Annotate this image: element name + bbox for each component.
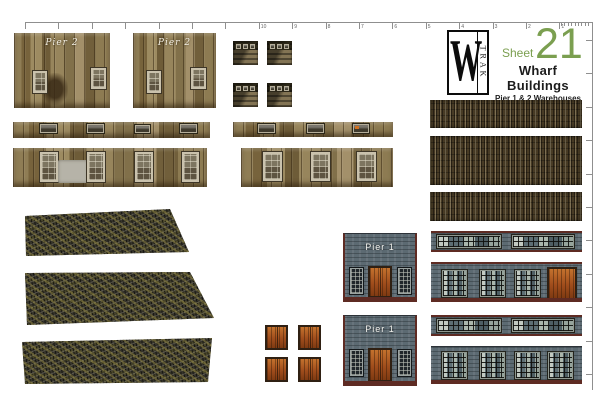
ruler-tick	[586, 140, 592, 141]
window	[250, 86, 255, 91]
ruler-tick	[225, 22, 226, 29]
pier1-front-label: Pier 1	[345, 324, 415, 334]
door-split-line	[380, 350, 381, 380]
window	[398, 350, 411, 376]
clerestory-strip-a	[431, 231, 582, 252]
window	[284, 86, 289, 91]
pier2-wall-large-a: Pier 2	[14, 33, 110, 108]
foundation-trim	[431, 298, 582, 302]
window	[91, 68, 106, 89]
wood-strip-tall-b	[241, 148, 393, 187]
door-split-line	[310, 327, 311, 348]
freight-door	[368, 266, 392, 298]
roof-piece-long	[21, 337, 213, 384]
ruler-tick-label: 6	[394, 24, 397, 30]
pier2-wall-label: Pier 2	[133, 38, 216, 48]
roof-piece-small	[22, 208, 190, 256]
window	[357, 152, 376, 181]
ruler-tick-label: 2	[528, 24, 531, 30]
ruler-tick	[259, 22, 260, 29]
ruler-tick	[326, 22, 327, 29]
ruler-tick-label: 3	[495, 24, 498, 30]
sheet-canvas: 10987654321 Pier 2 Pier 2	[0, 0, 600, 400]
freight-door	[368, 348, 392, 382]
window	[284, 44, 289, 49]
clerestory-window	[437, 235, 501, 248]
window	[548, 352, 573, 379]
wood-strip-thin-a	[13, 122, 210, 138]
sheet-word: Sheet	[502, 46, 533, 60]
door-split-line	[277, 359, 278, 380]
window	[250, 44, 255, 49]
pier2-wall-large-b: Pier 2	[133, 33, 216, 108]
window	[307, 124, 324, 133]
window	[350, 268, 363, 294]
window	[515, 270, 540, 297]
ruler-tick	[58, 22, 59, 29]
window	[263, 152, 282, 181]
window	[147, 71, 161, 93]
ruler-tick-label: 8	[328, 24, 331, 30]
window	[191, 68, 206, 89]
window	[87, 124, 104, 133]
door-square	[298, 325, 321, 350]
door-square	[265, 357, 288, 382]
window	[270, 86, 275, 91]
window	[236, 44, 241, 49]
window	[277, 86, 282, 91]
window	[442, 352, 467, 379]
window	[135, 152, 153, 182]
window	[258, 124, 275, 133]
foundation-trim	[345, 297, 415, 302]
window-detail	[355, 126, 359, 129]
warehouse-wall-windows	[431, 346, 582, 384]
window	[182, 152, 199, 182]
pier2-wall-label: Pier 2	[14, 38, 110, 48]
ruler-tick	[426, 22, 427, 29]
door-split-line	[310, 359, 311, 380]
ruler-tick	[359, 22, 360, 29]
door-split-line	[277, 327, 278, 348]
window	[243, 44, 248, 49]
window	[311, 152, 330, 181]
window	[442, 270, 467, 297]
door-split-line	[380, 268, 381, 296]
wood-strip-tall-a	[13, 148, 207, 187]
ruler-tick	[586, 274, 592, 275]
ruler-tick	[92, 22, 93, 29]
wood-strip-thin-b	[233, 122, 393, 137]
sheet-number: 21	[535, 24, 583, 64]
ruler-tick-label: 7	[361, 24, 364, 30]
ruler-tick	[586, 240, 592, 241]
horizontal-ruler	[25, 22, 593, 23]
ruler-tick	[392, 22, 393, 29]
freight-door	[547, 267, 577, 300]
window	[515, 352, 540, 379]
window	[277, 44, 282, 49]
ruler-tick	[586, 207, 592, 208]
repair-patch	[58, 160, 88, 183]
pier1-front-a: Pier 1	[343, 233, 417, 302]
window	[243, 86, 248, 91]
window	[398, 268, 411, 294]
ruler-tick	[586, 374, 592, 375]
ruler-tick-label: 10	[261, 24, 267, 30]
foundation-trim	[345, 381, 415, 386]
door-square	[265, 325, 288, 350]
ruler-tick-label: 5	[428, 24, 431, 30]
plank-strip-a	[430, 100, 582, 128]
end-wall-square	[267, 41, 292, 65]
ruler-tick	[586, 174, 592, 175]
ruler-fine-tick	[588, 22, 589, 26]
window	[180, 124, 197, 133]
window	[236, 86, 241, 91]
window	[270, 44, 275, 49]
ruler-fine-tick	[585, 22, 586, 26]
window	[40, 124, 57, 133]
clerestory-strip-b	[431, 315, 582, 336]
window	[87, 152, 105, 182]
ruler-tick	[526, 22, 527, 29]
window	[33, 71, 47, 93]
clerestory-window	[512, 235, 574, 248]
end-wall-square	[233, 83, 258, 107]
pier1-front-b: Pier 1	[343, 315, 417, 386]
wtrak-logo: W TRAK	[447, 30, 489, 95]
ruler-tick	[159, 22, 160, 29]
door-square	[298, 357, 321, 382]
window	[480, 352, 505, 379]
clerestory-window	[437, 319, 501, 332]
foundation-trim	[431, 380, 582, 384]
pier1-front-label: Pier 1	[345, 242, 415, 252]
ruler-tick	[25, 22, 26, 29]
ruler-tick	[586, 40, 592, 41]
ruler-tick	[125, 22, 126, 29]
ruler-tick	[586, 307, 592, 308]
warehouse-wall-with-door	[431, 262, 582, 302]
ruler-tick-label: 9	[294, 24, 297, 30]
ruler-tick	[586, 341, 592, 342]
roof-piece-medium	[24, 271, 215, 326]
end-wall-square	[267, 83, 292, 107]
window	[40, 152, 58, 182]
window	[135, 125, 150, 133]
ruler-tick	[292, 22, 293, 29]
ruler-tick	[493, 22, 494, 29]
clerestory-window	[512, 319, 574, 332]
sheet-title: Wharf Buildings	[486, 63, 590, 93]
end-wall-square	[233, 41, 258, 65]
plank-strip-b	[430, 136, 582, 185]
vertical-ruler	[592, 22, 593, 390]
window	[350, 350, 363, 376]
ruler-tick	[192, 22, 193, 29]
window	[480, 270, 505, 297]
plank-strip-c	[430, 192, 582, 221]
